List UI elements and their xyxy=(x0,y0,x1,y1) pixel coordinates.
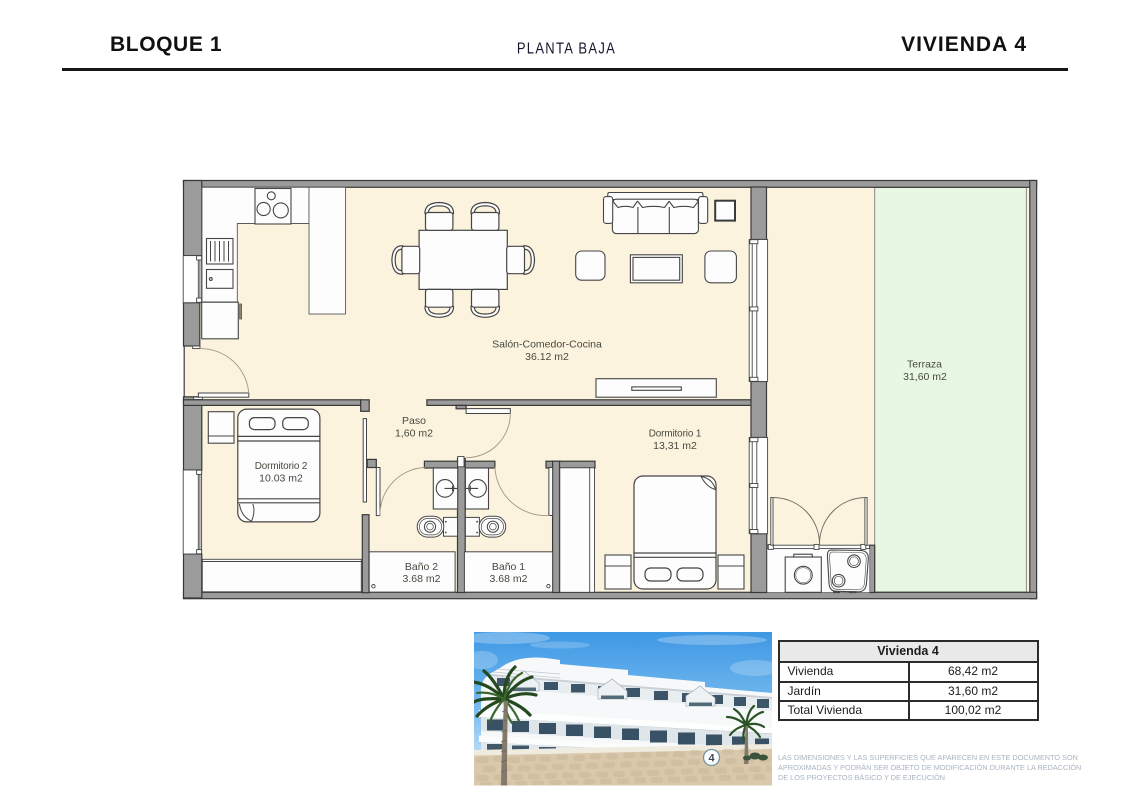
svg-text:1,60 m2: 1,60 m2 xyxy=(395,428,433,440)
svg-text:3.68 m2: 3.68 m2 xyxy=(403,573,441,585)
svg-text:13,31 m2: 13,31 m2 xyxy=(653,440,697,452)
svg-text:Dormitorio 1: Dormitorio 1 xyxy=(649,429,702,440)
svg-text:Paso: Paso xyxy=(402,415,426,427)
svg-text:Baño 2: Baño 2 xyxy=(405,561,438,573)
svg-text:Salón-Comedor-Cocina: Salón-Comedor-Cocina xyxy=(492,339,602,351)
svg-text:31,60 m2: 31,60 m2 xyxy=(903,371,947,383)
svg-text:10.03 m2: 10.03 m2 xyxy=(259,473,303,485)
svg-text:Dormitorio 2: Dormitorio 2 xyxy=(255,461,308,472)
svg-text:Terraza: Terraza xyxy=(907,359,942,371)
svg-text:4: 4 xyxy=(708,753,715,765)
svg-text:3.68 m2: 3.68 m2 xyxy=(490,573,528,585)
svg-text:36.12 m2: 36.12 m2 xyxy=(525,351,569,363)
svg-text:Baño 1: Baño 1 xyxy=(492,561,525,573)
